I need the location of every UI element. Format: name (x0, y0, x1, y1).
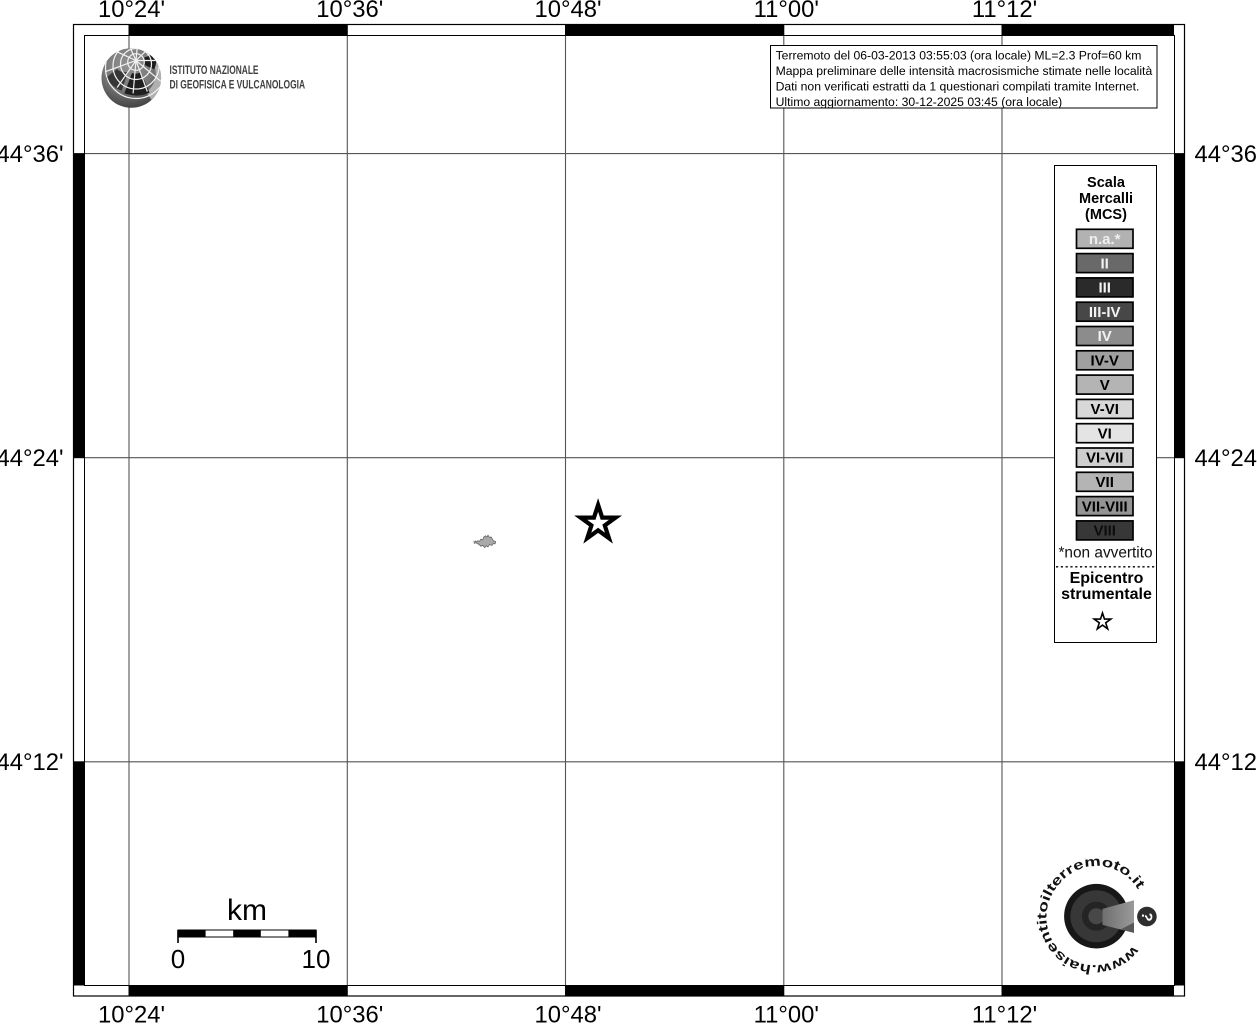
svg-text:DI GEOFISICA E VULCANOLOGIA: DI GEOFISICA E VULCANOLOGIA (170, 78, 306, 92)
svg-text:Mercalli: Mercalli (1079, 191, 1133, 207)
svg-text:11°12': 11°12' (972, 1002, 1037, 1024)
svg-text:strumentale: strumentale (1061, 586, 1152, 603)
svg-text:Scala: Scala (1087, 175, 1126, 191)
svg-text:n.a.*: n.a.* (1089, 231, 1121, 248)
svg-text:10°48': 10°48' (535, 1002, 602, 1024)
svg-text:IV-V: IV-V (1091, 353, 1119, 370)
svg-text:44°24': 44°24' (0, 445, 64, 472)
svg-text:10°36': 10°36' (316, 0, 383, 23)
svg-text:44°12': 44°12' (0, 749, 64, 776)
svg-text:Ultimo aggiornamento: 30-12-20: Ultimo aggiornamento: 30-12-2025 03:45 (… (776, 95, 1063, 109)
svg-text:III-IV: III-IV (1089, 304, 1121, 321)
svg-text:(MCS): (MCS) (1085, 207, 1127, 223)
svg-text:44°12': 44°12' (1195, 749, 1257, 776)
svg-text:10°48': 10°48' (535, 0, 602, 23)
svg-text:ISTITUTO NAZIONALE: ISTITUTO NAZIONALE (170, 63, 259, 77)
svg-text:IV: IV (1098, 328, 1112, 345)
svg-text:Epicentro: Epicentro (1070, 570, 1144, 587)
svg-text:VII-VIII: VII-VIII (1082, 498, 1128, 515)
svg-text:km: km (227, 894, 267, 927)
svg-text:VII: VII (1096, 474, 1114, 491)
svg-text:10°24': 10°24' (98, 1002, 165, 1024)
svg-text:III: III (1098, 280, 1111, 297)
svg-text:44°36': 44°36' (1195, 141, 1257, 168)
svg-text:0: 0 (171, 944, 185, 974)
svg-text:10: 10 (302, 944, 331, 974)
svg-text:Dati non verificati estratti d: Dati non verificati estratti da 1 questi… (776, 79, 1140, 93)
svg-text:11°00': 11°00' (754, 0, 819, 23)
svg-text:Mappa preliminare delle intens: Mappa preliminare delle intensità macros… (776, 64, 1153, 78)
svg-text:44°24': 44°24' (1195, 445, 1257, 472)
svg-text:II: II (1101, 255, 1109, 272)
svg-text:VI-VII: VI-VII (1086, 450, 1124, 467)
svg-text:11°00': 11°00' (754, 1002, 819, 1024)
svg-text:44°36': 44°36' (0, 141, 64, 168)
svg-text:VI: VI (1098, 425, 1112, 442)
svg-text:V: V (1100, 377, 1110, 394)
svg-text:10°36': 10°36' (316, 1002, 383, 1024)
svg-text:Terremoto del 06-03-2013 03:55: Terremoto del 06-03-2013 03:55:03 (ora l… (776, 48, 1142, 62)
svg-text:VIII: VIII (1093, 523, 1116, 540)
svg-text:10°24': 10°24' (98, 0, 165, 23)
svg-text:*non avvertito: *non avvertito (1058, 545, 1152, 562)
svg-text:V-VI: V-VI (1091, 401, 1119, 418)
svg-text:11°12': 11°12' (972, 0, 1037, 23)
